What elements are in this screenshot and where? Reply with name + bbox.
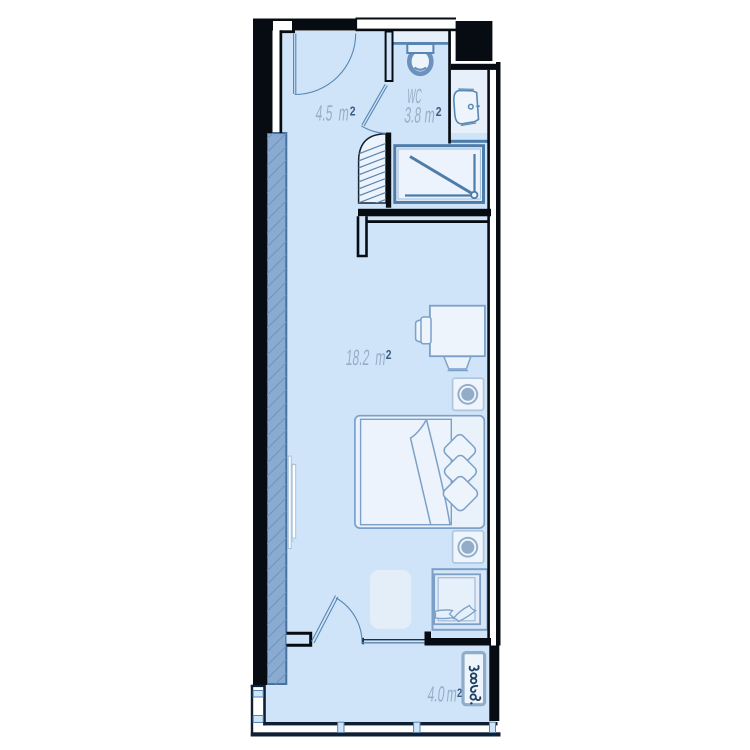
svg-text:3.8: 3.8 <box>403 103 422 128</box>
svg-text:2: 2 <box>386 348 392 362</box>
svg-text:4.5: 4.5 <box>314 101 333 126</box>
svg-text:4.0: 4.0 <box>426 682 445 707</box>
svg-text:2: 2 <box>350 104 356 118</box>
svg-text:18.2: 18.2 <box>345 345 371 370</box>
svg-text:2: 2 <box>436 105 442 119</box>
svg-text:2: 2 <box>457 688 462 700</box>
